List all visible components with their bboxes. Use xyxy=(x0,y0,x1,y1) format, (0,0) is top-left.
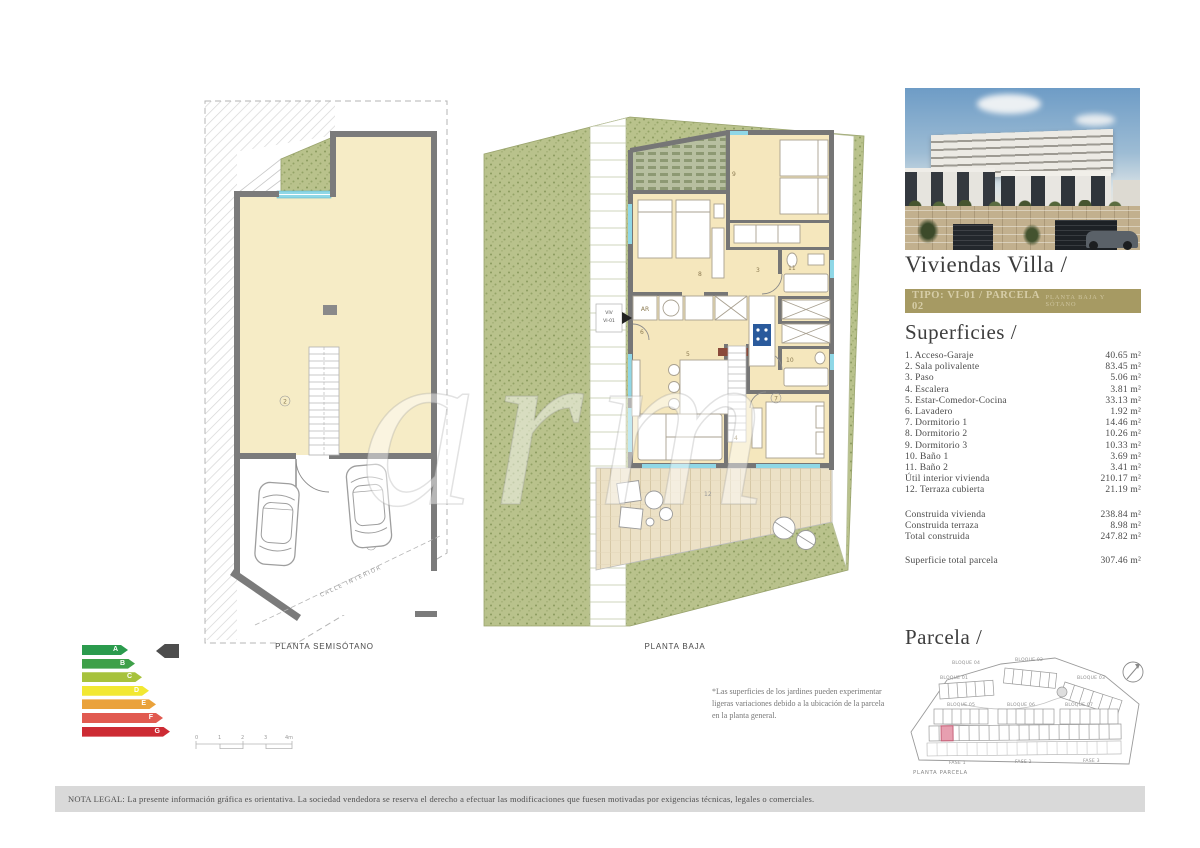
cloud xyxy=(977,94,1041,114)
superficies-label: 7. Dormitorio 1 xyxy=(905,418,967,429)
room-label-dorm2: 8 xyxy=(698,271,702,278)
energy-grade-letter: A xyxy=(113,645,118,655)
stairs xyxy=(728,346,746,442)
svg-text:2: 2 xyxy=(283,398,287,405)
superficies-label: Construida vivienda xyxy=(905,510,986,521)
energy-rating-label: A B C D E F xyxy=(82,645,282,745)
superficies-label: Útil interior vivienda xyxy=(905,474,990,485)
superficies-row: 12. Terraza cubierta 21.19 m² xyxy=(905,485,1141,496)
superficies-label: 1. Acceso-Garaje xyxy=(905,351,974,362)
superficies-value: 5.06 m² xyxy=(1110,373,1141,384)
block-label: BLOQUE 05 xyxy=(947,702,975,708)
superficies-value: 83.45 m² xyxy=(1105,362,1141,373)
superficies-row: 8. Dormitorio 2 10.26 m² xyxy=(905,429,1141,440)
floor-plan-baja: VIV VI-01 AR 9 8 6 3 5 4 7 11 10 12 xyxy=(480,108,870,633)
superficies-label: Superficie total parcela xyxy=(905,556,998,567)
energy-grade-letter: B xyxy=(120,659,125,669)
hero-render-image xyxy=(905,88,1140,250)
energy-grade-bar: G xyxy=(82,727,170,737)
superficies-value: 1.92 m² xyxy=(1110,407,1141,418)
closet-label: AR xyxy=(641,306,649,313)
page-title: Viviendas Villa / xyxy=(905,252,1145,278)
superficies-label: Construida terraza xyxy=(905,521,979,532)
scale-tick-label: 3 xyxy=(264,735,267,741)
energy-grade-letter: C xyxy=(127,672,132,682)
room-label-escalera: 4 xyxy=(734,435,738,442)
cloud xyxy=(1075,114,1115,126)
caption-planta-baja: PLANTA BAJA xyxy=(480,642,870,651)
block-06-units xyxy=(998,709,1054,724)
room-label-estar: 5 xyxy=(686,351,690,358)
block-label: BLOQUE 03 xyxy=(1077,675,1105,681)
block-label: BLOQUE 06 xyxy=(1007,702,1035,708)
brochure-sheet: 2 1 CALLE INTERIOR xyxy=(0,0,1200,848)
superficies-label: 10. Baño 1 xyxy=(905,452,948,463)
superficies-row: Útil interior vivienda 210.17 m² xyxy=(905,474,1141,485)
superficies-value: 8.98 m² xyxy=(1110,521,1141,532)
plant xyxy=(1021,222,1043,248)
car-left xyxy=(254,482,300,567)
superficies-table: 1. Acceso-Garaje 40.65 m² 2. Sala poliva… xyxy=(905,351,1141,567)
superficies-label: Total construida xyxy=(905,532,970,543)
type-banner-right: PLANTA BAJA Y SÓTANO xyxy=(1046,294,1133,308)
superficies-row: 4. Escalera 3.81 m² xyxy=(905,385,1141,396)
energy-grade-bar: B xyxy=(82,659,135,669)
fase-label: FASE 2 xyxy=(1015,759,1032,765)
energy-grade-letter: F xyxy=(149,713,153,723)
superficies-row: 2. Sala polivalente 83.45 m² xyxy=(905,362,1141,373)
type-banner-left: TIPO: VI-01 / PARCELA 02 xyxy=(912,290,1046,312)
svg-text:7: 7 xyxy=(774,395,778,402)
villa-row xyxy=(929,724,1121,741)
room-label-dorm3: 9 xyxy=(732,171,736,178)
caption-planta-parcela: PLANTA PARCELA xyxy=(913,770,968,776)
superficies-value: 3.81 m² xyxy=(1110,385,1141,396)
superficies-row: 11. Baño 2 3.41 m² xyxy=(905,463,1141,474)
room-label-bano1: 10 xyxy=(786,357,794,364)
room-label-bano2: 11 xyxy=(788,265,796,272)
superficies-value: 3.41 m² xyxy=(1110,463,1141,474)
energy-grade-bar: E xyxy=(82,699,156,709)
block-label: BLOQUE 07 xyxy=(1065,702,1093,708)
svg-text:VI-01: VI-01 xyxy=(603,318,615,324)
legal-note: NOTA LEGAL: La presente información gráf… xyxy=(55,794,814,804)
superficies-row: Total construida 247.82 m² xyxy=(905,532,1141,543)
superficies-label: 8. Dormitorio 2 xyxy=(905,429,967,440)
superficies-label: 11. Baño 2 xyxy=(905,463,948,474)
superficies-row: Construida vivienda 238.84 m² xyxy=(905,510,1141,521)
superficies-value: 14.46 m² xyxy=(1105,418,1141,429)
superficies-value: 210.17 m² xyxy=(1100,474,1141,485)
plant xyxy=(915,216,941,246)
type-banner: TIPO: VI-01 / PARCELA 02 PLANTA BAJA Y S… xyxy=(905,289,1141,313)
energy-grade-letter: E xyxy=(141,699,146,709)
superficies-row: 7. Dormitorio 1 14.46 m² xyxy=(905,418,1141,429)
scale-tick-label: 4m xyxy=(285,735,293,741)
parcela-heading: Parcela / xyxy=(905,625,1145,650)
room-label-paso: 3 xyxy=(756,267,760,274)
superficies-label: 12. Terraza cubierta xyxy=(905,485,984,496)
scale-tick-label: 0 xyxy=(195,735,198,741)
hatch-band-left xyxy=(205,101,237,640)
scale-bar: 0 1 2 3 4m xyxy=(195,733,299,751)
highlighted-parcel xyxy=(941,726,953,741)
superficies-row: Construida terraza 8.98 m² xyxy=(905,521,1141,532)
superficies-row: 6. Lavadero 1.92 m² xyxy=(905,407,1141,418)
superficies-label: 2. Sala polivalente xyxy=(905,362,979,373)
terrace-row xyxy=(927,741,1121,756)
block-label: BLOQUE 01 xyxy=(940,675,968,681)
scale-tick-label: 2 xyxy=(241,735,244,741)
fase-label: FASE 1 xyxy=(949,760,966,766)
energy-grade-letter: G xyxy=(155,727,160,737)
energy-grade-bar: C xyxy=(82,672,142,682)
floor-plan-semisotano: 2 1 CALLE INTERIOR xyxy=(197,95,452,645)
car-wheel xyxy=(1089,241,1098,250)
room-label-terraza: 12 xyxy=(704,491,712,498)
block-label: BLOQUE 04 xyxy=(952,660,980,666)
pillar xyxy=(323,305,337,315)
svg-text:VIV: VIV xyxy=(605,310,613,316)
compass-icon xyxy=(1123,662,1143,682)
superficies-row: 9. Dormitorio 3 10.33 m² xyxy=(905,441,1141,452)
block-label: BLOQUE 02 xyxy=(1015,657,1043,663)
superficies-value: 10.26 m² xyxy=(1105,429,1141,440)
roundabout xyxy=(1057,687,1067,697)
fase-label: FASE 3 xyxy=(1083,758,1100,764)
superficies-value: 33.13 m² xyxy=(1105,396,1141,407)
patio-garden xyxy=(281,137,333,193)
superficies-label: 4. Escalera xyxy=(905,385,949,396)
superficies-label: 3. Paso xyxy=(905,373,934,384)
caption-planta-semisotano: PLANTA SEMISÓTANO xyxy=(197,642,452,651)
energy-grade-bar: F xyxy=(82,713,163,723)
energy-bars: A B C D E F xyxy=(82,645,170,740)
superficies-row: 3. Paso 5.06 m² xyxy=(905,373,1141,384)
paving-cells xyxy=(239,159,281,192)
car-right xyxy=(346,463,393,548)
superficies-value: 21.19 m² xyxy=(1105,485,1141,496)
scale-tick-label: 1 xyxy=(218,735,221,741)
superficies-row: 5. Estar-Comedor-Cocina 33.13 m² xyxy=(905,396,1141,407)
stairs xyxy=(309,347,339,455)
superficies-heading: Superficies / xyxy=(905,320,1145,345)
superficies-value: 40.65 m² xyxy=(1105,351,1141,362)
superficies-row: 1. Acceso-Garaje 40.65 m² xyxy=(905,351,1141,362)
superficies-value: 238.84 m² xyxy=(1100,510,1141,521)
gardens-note: *Las superficies de los jardines pueden … xyxy=(712,686,888,722)
superficies-value: 247.82 m² xyxy=(1100,532,1141,543)
block-05-units xyxy=(934,709,988,724)
superficies-value: 3.69 m² xyxy=(1110,452,1141,463)
superficies-label: 5. Estar-Comedor-Cocina xyxy=(905,396,1007,407)
energy-grade-bar: D xyxy=(82,686,149,696)
legal-strip: NOTA LEGAL: La presente información gráf… xyxy=(55,786,1145,812)
car-wheel xyxy=(1123,241,1132,250)
superficies-value: 307.46 m² xyxy=(1100,556,1141,567)
room-label-lavadero: 6 xyxy=(640,329,644,336)
block-07-units xyxy=(1060,709,1118,724)
energy-grade-bar: A xyxy=(82,645,128,655)
superficies-label: 6. Lavadero xyxy=(905,407,953,418)
cooktop xyxy=(753,324,771,346)
superficies-row: 10. Baño 1 3.69 m² xyxy=(905,452,1141,463)
garage-door xyxy=(953,224,993,250)
energy-grade-letter: D xyxy=(134,686,139,696)
superficies-label: 9. Dormitorio 3 xyxy=(905,441,967,452)
superficies-row: Superficie total parcela 307.46 m² xyxy=(905,556,1141,567)
site-plan: BLOQUE 04 BLOQUE 02 BLOQUE 03 BLOQUE 01 … xyxy=(905,652,1155,776)
superficies-value: 10.33 m² xyxy=(1105,441,1141,452)
